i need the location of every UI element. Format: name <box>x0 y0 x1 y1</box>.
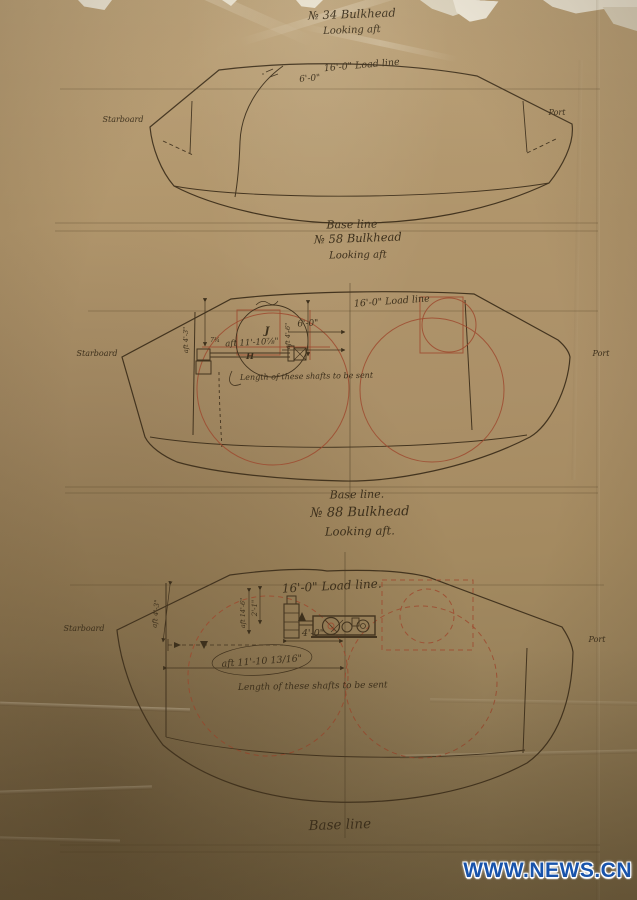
inner-left-frame <box>190 101 192 153</box>
foundation-block <box>196 361 211 374</box>
subtitle-no58: Looking aft <box>328 249 388 261</box>
drawing-no58: № 58 Bulkhead Looking aft 16'-0" Load li… <box>65 229 610 501</box>
right-dashed-brace <box>527 139 556 153</box>
starboard-label: Starboard <box>64 624 105 633</box>
dim-4-0-label: 4'-0" <box>301 628 324 639</box>
inner-bottom-line <box>174 183 549 196</box>
hull-outline <box>122 292 570 481</box>
port-shaft-circle <box>197 313 349 465</box>
starboard-label: Starboard <box>77 349 118 358</box>
shaft-note: Length of these shafts to be sent <box>237 680 388 693</box>
title-no88: № 88 Bulkhead <box>309 504 409 521</box>
inner-left-frame <box>193 312 195 435</box>
dim-inner-label: aft 4'-6" <box>284 323 292 349</box>
shaft-note: Length of these shafts to be sent <box>239 371 374 382</box>
thrust-block <box>284 604 299 638</box>
dashed-shaft-line <box>219 372 222 450</box>
red-dashed-circles <box>188 580 497 758</box>
dim-left-label: aft 4'-3" <box>182 327 190 353</box>
wheel-mid <box>342 622 352 632</box>
blueprint-drawing-layer: № 34 Bulkhead Looking aft 16'-0" Load li… <box>0 0 637 900</box>
dim-14-6-label: aft 14'-6" <box>239 598 247 628</box>
wheel-small-hub <box>361 624 366 629</box>
inner-right-frame <box>523 648 527 753</box>
tick-scribbles <box>262 69 278 77</box>
base-line-label: Base line. <box>329 488 385 502</box>
title-no34: № 34 Bulkhead <box>307 5 396 22</box>
load-line-label: 16'-0" Load line <box>354 293 431 309</box>
load-line-label: 16'-0" Load line <box>323 57 400 75</box>
hull-outline <box>150 64 572 223</box>
label-h: H <box>245 352 255 362</box>
solid-arrow <box>174 642 181 648</box>
port-label: Port <box>588 635 607 644</box>
base-line-label: Base line <box>307 816 371 834</box>
dim-2-1-label: 2'-1" <box>251 600 259 617</box>
port-shaft-circle <box>188 596 348 756</box>
dim-small-label: 7¾ <box>210 337 220 344</box>
left-dashed-brace <box>163 141 193 155</box>
news-watermark: WWW.NEWS.CN <box>460 859 632 883</box>
tunnel-curve <box>235 66 283 197</box>
shaft-lines <box>299 621 313 625</box>
inner-bottom-line <box>150 435 527 447</box>
thrust-ribs <box>284 613 299 630</box>
base-guide-lines <box>60 845 600 852</box>
drawing-no88: № 88 Bulkhead Looking aft. 16'-0" Load l… <box>60 504 606 852</box>
subtitle-no88: Looking aft. <box>324 523 395 538</box>
label-j: J <box>263 326 271 337</box>
load-line-label: 16'-0" Load line. <box>282 576 382 595</box>
dim-6-0: 6'-0" <box>299 73 321 85</box>
red-square-right <box>420 297 463 353</box>
drawing-no34: № 34 Bulkhead Looking aft 16'-0" Load li… <box>55 5 600 231</box>
inner-right-frame <box>523 101 527 152</box>
subtitle-no34: Looking aft <box>322 24 382 37</box>
port-label: Port <box>548 108 567 117</box>
inner-bottom-line <box>166 737 525 757</box>
dashed-square <box>382 580 473 650</box>
starboard-label: Starboard <box>103 115 144 124</box>
port-label: Port <box>592 349 611 358</box>
blueprint-photo: № 34 Bulkhead Looking aft 16'-0" Load li… <box>0 0 637 900</box>
scribble-marks <box>256 301 278 305</box>
base-line-label: Base line <box>325 218 378 232</box>
dim-left-label: aft 4'-3" <box>151 599 162 628</box>
title-no58: № 58 Bulkhead <box>313 229 402 246</box>
dim-shaft-label: aft 11'-10 13/16" <box>221 653 302 670</box>
small-red-circle <box>422 298 476 352</box>
dashed-small-circle <box>400 589 454 643</box>
dim-6-0-label: 6'-0" <box>297 318 319 329</box>
inner-right-frame <box>465 300 472 430</box>
